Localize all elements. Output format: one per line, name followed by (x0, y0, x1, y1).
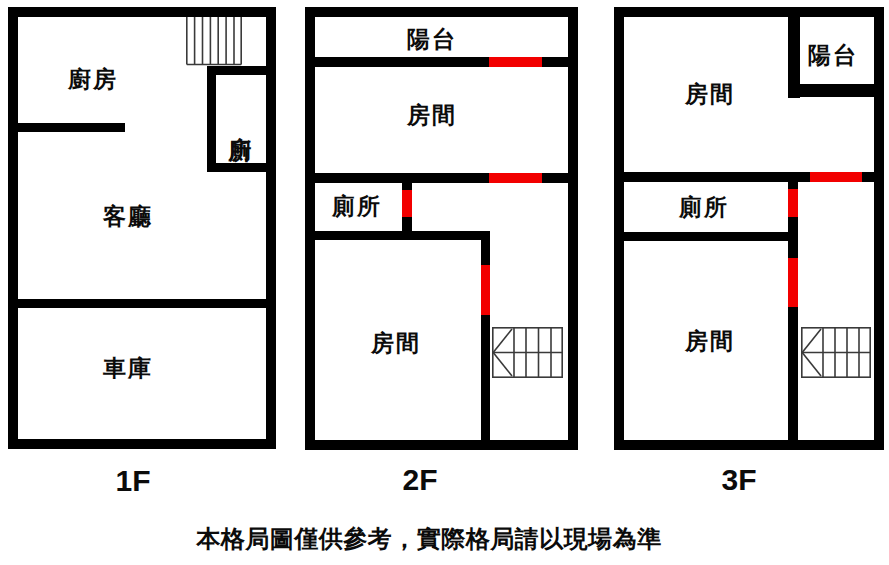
balcony-bottom-wall (788, 84, 884, 97)
toilet-left-wall (207, 66, 216, 172)
lower-room-door-marker (788, 258, 798, 307)
room-label-room-lower: 房間 (685, 326, 735, 357)
room-label-kitchen: 廚房 (68, 64, 118, 95)
floor-caption-2f: 2F (402, 463, 437, 497)
stairs-icon (186, 17, 242, 66)
toilet-door-marker (788, 189, 798, 217)
room-label-room-upper: 房間 (407, 100, 457, 131)
upper-room-door-marker (810, 172, 862, 182)
room-label-toilet: 廁所 (679, 192, 729, 223)
room-label-toilet: 廁所 (332, 191, 382, 222)
balcony-door-marker (489, 57, 542, 67)
kitchen-partition-wall (8, 123, 125, 132)
upper-room-door-marker (489, 173, 542, 183)
floor-2f-outer-wall (305, 7, 578, 450)
room-label-room-upper: 房間 (685, 79, 735, 110)
garage-partition-wall (8, 299, 276, 308)
floor-caption-1f: 1F (115, 464, 150, 498)
hall-wall (305, 231, 490, 240)
toilet-bottom-wall (614, 232, 798, 241)
room-label-room-lower: 房間 (371, 328, 421, 359)
floor-1f: 廚房 廁所 客廳 車庫 (8, 7, 276, 449)
toilet-door-marker (402, 190, 412, 217)
floor-2f: 陽台 房間 廁所 房間 (305, 7, 578, 450)
toilet-bottom-wall (207, 163, 276, 172)
floor-3f-outer-wall (614, 7, 884, 450)
disclaimer-text: 本格局圖僅供參考，實際格局請以現場為準 (196, 523, 662, 555)
stairs-icon (801, 327, 871, 378)
room-label-balcony: 陽台 (407, 24, 457, 55)
lower-room-right-wall (481, 231, 490, 443)
stairs-icon (492, 327, 563, 378)
floorplan-canvas: 廚房 廁所 客廳 車庫 陽台 房間 廁所 房間 (0, 0, 889, 565)
toilet-top-wall (207, 66, 276, 75)
room-label-living: 客廳 (103, 201, 153, 232)
room-label-garage: 車庫 (103, 353, 153, 384)
room-label-balcony: 陽台 (808, 40, 858, 71)
floor-caption-3f: 3F (721, 463, 756, 497)
floor-3f: 房間 陽台 廁所 房間 (614, 7, 884, 450)
lower-room-door-marker (481, 265, 490, 315)
room-label-toilet: 廁所 (226, 117, 257, 123)
